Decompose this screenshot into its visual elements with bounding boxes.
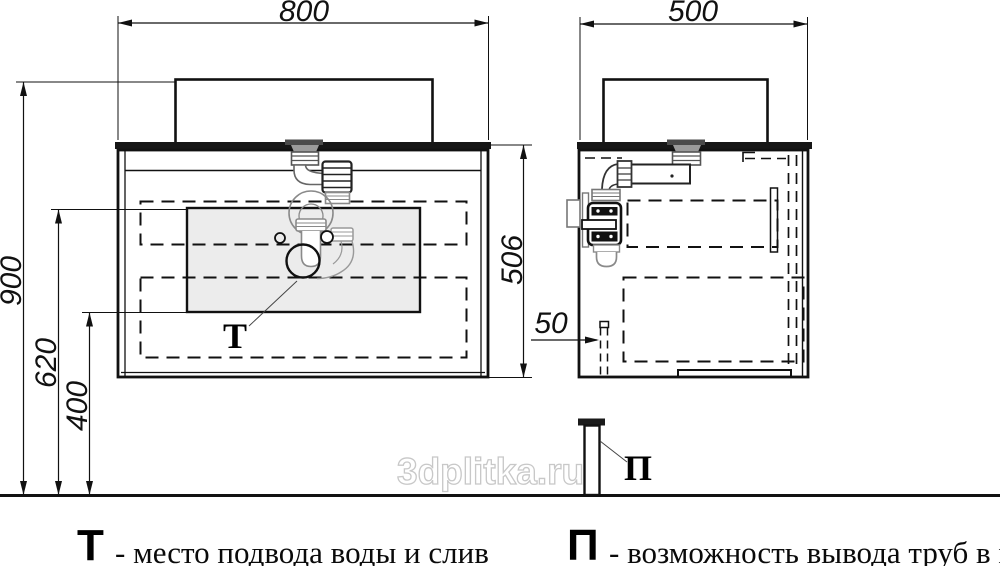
- marker-p-side: П: [624, 450, 652, 486]
- legend-symbol-t: Т: [77, 524, 104, 566]
- dim-label-height-900: 900: [0, 256, 26, 306]
- vanity-technical-drawing: 3dplitka.ru: [0, 0, 1000, 566]
- hanging-rail: [771, 188, 778, 252]
- supply-point-right: [321, 231, 333, 243]
- marker-t-front: Т: [223, 318, 247, 354]
- dim-label-height-620: 620: [33, 338, 61, 388]
- dim-label-width-800: 800: [275, 0, 333, 26]
- dim-label-height-400: 400: [64, 381, 92, 431]
- dim-label-depth-500: 500: [663, 0, 723, 26]
- legend-text-t: - место подвода воды и слив: [115, 537, 489, 566]
- dim-label-offset-50: 50: [531, 310, 571, 338]
- floor-and-pipe: [0, 419, 1000, 496]
- dim-label-height-506: 506: [499, 235, 527, 285]
- floor-pipe: [585, 426, 600, 496]
- legend-symbol-p: П: [567, 524, 599, 566]
- legend-text-p: - возможность вывода труб в пол: [609, 537, 1000, 566]
